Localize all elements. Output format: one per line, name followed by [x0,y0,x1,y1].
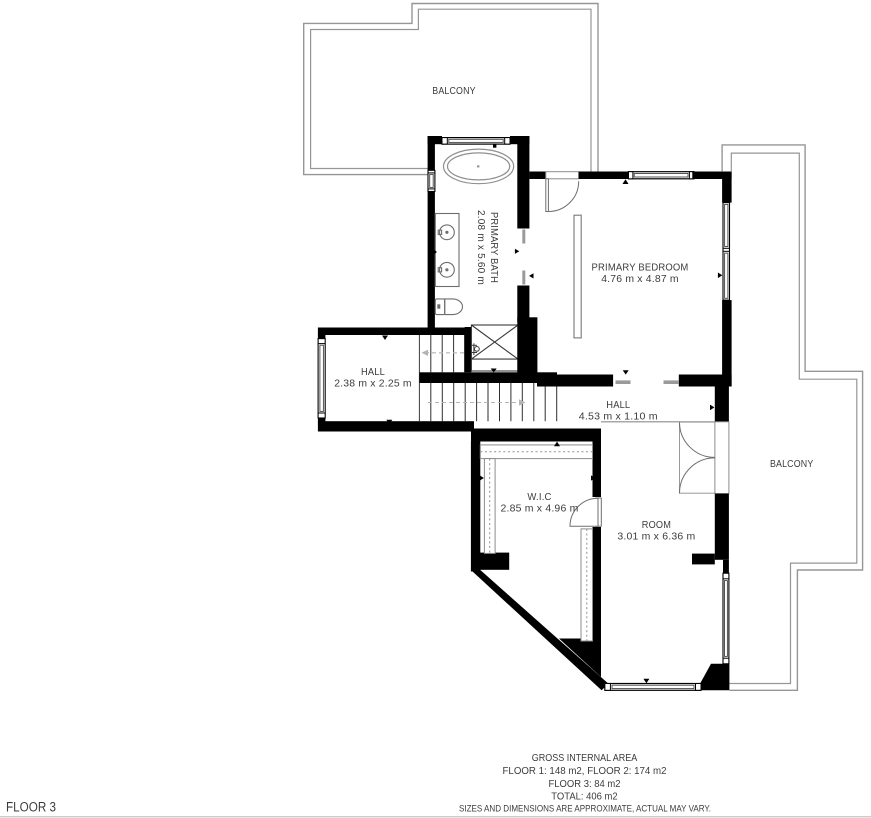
svg-text:2.85 m x 4.96 m: 2.85 m x 4.96 m [501,502,579,514]
svg-text:ROOM: ROOM [642,519,671,531]
svg-text:FLOOR 1: 148 m2, FLOOR 2: 174: FLOOR 1: 148 m2, FLOOR 2: 174 m2 [503,765,667,777]
svg-text:4.53 m x 1.10 m: 4.53 m x 1.10 m [579,410,658,422]
svg-text:2.38 m x 2.25 m: 2.38 m x 2.25 m [334,378,412,390]
svg-text:TOTAL: 406 m2: TOTAL: 406 m2 [551,791,618,803]
svg-text:PRIMARY BATH: PRIMARY BATH [488,212,500,283]
svg-text:4.76 m x 4.87 m: 4.76 m x 4.87 m [601,273,679,285]
svg-text:HALL: HALL [361,366,385,378]
svg-text:HALL: HALL [606,399,630,411]
svg-text:FLOOR 3: FLOOR 3 [6,800,56,815]
svg-text:GROSS INTERNAL AREA: GROSS INTERNAL AREA [532,752,637,764]
svg-text:3.01 m x 6.36 m: 3.01 m x 6.36 m [617,531,695,543]
svg-text:W.I.C: W.I.C [527,491,551,503]
svg-text:FLOOR 3: 84 m2: FLOOR 3: 84 m2 [549,778,621,790]
svg-text:BALCONY: BALCONY [770,458,814,470]
svg-text:2.08 m x 5.60 m: 2.08 m x 5.60 m [475,210,487,285]
svg-text:BALCONY: BALCONY [432,85,476,97]
svg-text:SIZES AND DIMENSIONS ARE APPRO: SIZES AND DIMENSIONS ARE APPROXIMATE, AC… [459,804,711,814]
svg-text:PRIMARY BEDROOM: PRIMARY BEDROOM [592,261,689,273]
